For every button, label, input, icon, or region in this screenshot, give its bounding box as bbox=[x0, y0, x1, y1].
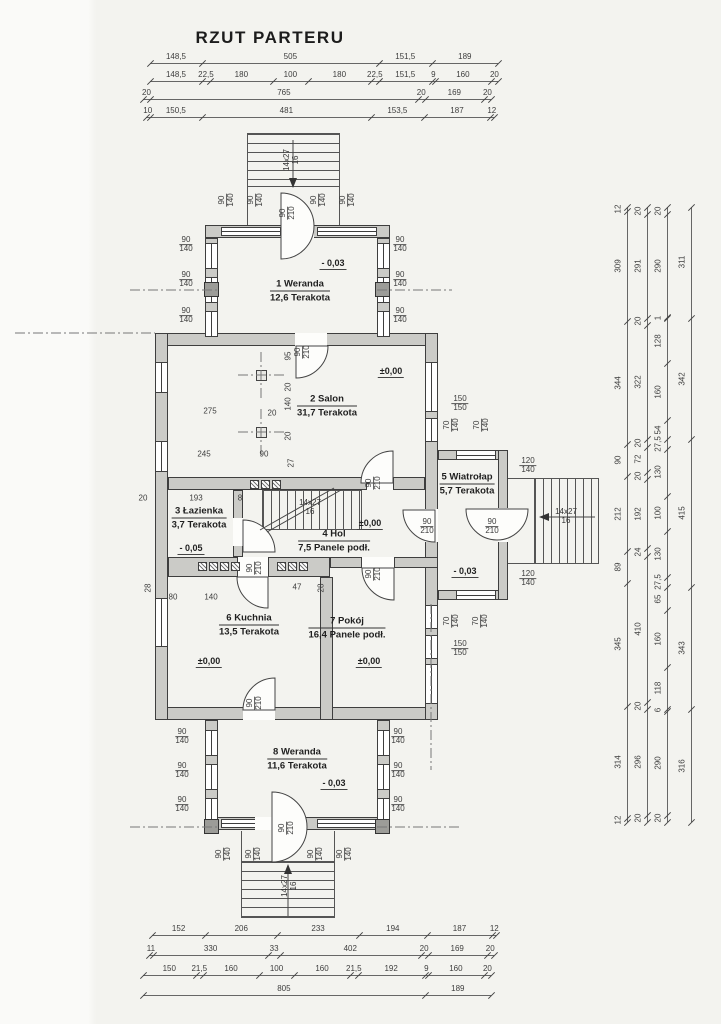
dim-label: 344 bbox=[614, 376, 623, 389]
dimension-chain: 2029120322207220192244102029620 bbox=[634, 207, 650, 822]
opening-size-label: 90140 bbox=[247, 193, 265, 206]
level-mark: - 0,03 bbox=[319, 258, 346, 270]
dim-label: 345 bbox=[614, 638, 623, 651]
dim-label: 65 bbox=[654, 594, 663, 603]
dim-label: 160 bbox=[449, 964, 462, 973]
dim-label: 8 bbox=[238, 494, 242, 503]
dim-label: 150 bbox=[163, 964, 176, 973]
dim-label: 20 bbox=[420, 944, 429, 953]
stairs-arrow-left bbox=[539, 513, 549, 521]
dim-label: 6 bbox=[654, 708, 663, 712]
opening-size-label: 90140 bbox=[307, 847, 325, 860]
dim-label: 189 bbox=[458, 52, 471, 61]
opening-size-label: 90140 bbox=[339, 193, 357, 206]
dim-label: 12 bbox=[487, 106, 496, 115]
dim-label: 245 bbox=[197, 450, 210, 459]
dim-label: 20 bbox=[142, 88, 151, 97]
opening-size-label: 90140 bbox=[179, 236, 192, 254]
dim-label: 27,5 bbox=[654, 575, 663, 591]
dim-label: 206 bbox=[235, 924, 248, 933]
dim-label: 28 bbox=[144, 584, 153, 593]
dim-label: 151,5 bbox=[395, 52, 415, 61]
dim-label: 180 bbox=[235, 70, 248, 79]
door-arc-kuchnia-hol bbox=[237, 577, 268, 608]
dim-label: 805 bbox=[277, 984, 290, 993]
dim-label: 20 bbox=[268, 409, 277, 418]
dim-label: 316 bbox=[678, 759, 687, 772]
dim-label: 140 bbox=[204, 593, 217, 602]
level-mark: ±0,00 bbox=[378, 366, 404, 378]
dimension-chain: 2029011281605427,513010013027,5651601186… bbox=[654, 207, 670, 822]
opening-size-label: 90210 bbox=[365, 567, 383, 580]
room-label: 3 Łazienka3,7 Terakota bbox=[172, 506, 227, 531]
dim-label: 160 bbox=[654, 632, 663, 645]
dim-label: 22,5 bbox=[367, 70, 383, 79]
dim-label: 481 bbox=[280, 106, 293, 115]
opening-size-label: 120140 bbox=[519, 457, 536, 475]
dim-label: 20 bbox=[483, 88, 492, 97]
dim-label: 9 bbox=[431, 70, 435, 79]
dim-label: 189 bbox=[451, 984, 464, 993]
dim-label: 47 bbox=[293, 583, 302, 592]
dim-label: 415 bbox=[678, 507, 687, 520]
dim-label: 765 bbox=[277, 88, 290, 97]
opening-size-label: 90210 bbox=[485, 518, 498, 536]
dim-label: 27 bbox=[287, 459, 296, 468]
dim-label: 11 bbox=[147, 944, 155, 953]
dim-label: 20 bbox=[654, 814, 663, 823]
dim-label: 160 bbox=[315, 964, 328, 973]
stairs-arrow-up bbox=[284, 864, 292, 874]
dim-label: 343 bbox=[678, 642, 687, 655]
opening-size-label: 90140 bbox=[391, 728, 404, 746]
dim-label: 33 bbox=[270, 944, 279, 953]
stairs-label: 14x2716 bbox=[282, 149, 300, 171]
dim-label: 151,5 bbox=[395, 70, 415, 79]
dim-label: 20 bbox=[284, 432, 293, 441]
dimension-chain: 148,522,518010018022,5151,5916020 bbox=[150, 70, 498, 84]
dim-label: 89 bbox=[614, 563, 623, 572]
dim-label: 402 bbox=[344, 944, 357, 953]
opening-size-label: 90140 bbox=[336, 847, 354, 860]
level-mark: - 0,03 bbox=[451, 566, 478, 578]
dim-label: 95 bbox=[284, 352, 293, 361]
opening-size-label: 70140 bbox=[443, 614, 461, 627]
opening-size-label: 90140 bbox=[179, 271, 192, 289]
opening-size-label: 90140 bbox=[175, 796, 188, 814]
dim-label: 22,5 bbox=[198, 70, 214, 79]
dim-label: 160 bbox=[456, 70, 469, 79]
dim-label: 290 bbox=[654, 756, 663, 769]
dim-label: 1 bbox=[654, 315, 663, 319]
dim-label: 153,5 bbox=[387, 106, 407, 115]
dimension-chain: 15021,516010016021,5192916020 bbox=[143, 964, 491, 978]
level-mark: - 0,05 bbox=[177, 543, 204, 555]
dim-label: 212 bbox=[614, 507, 623, 520]
dim-label: 20 bbox=[634, 439, 643, 448]
dim-label: 12 bbox=[490, 924, 499, 933]
dim-label: 505 bbox=[284, 52, 297, 61]
opening-size-label: 90210 bbox=[246, 561, 264, 574]
dim-label: 314 bbox=[614, 755, 623, 768]
dim-label: 20 bbox=[634, 206, 643, 215]
dim-label: 20 bbox=[634, 471, 643, 480]
opening-size-label: 90140 bbox=[215, 847, 233, 860]
dim-label: 187 bbox=[450, 106, 463, 115]
dim-label: 12 bbox=[614, 205, 623, 214]
dim-label: 20 bbox=[284, 383, 293, 392]
level-mark: ±0,00 bbox=[357, 518, 383, 530]
dimension-chain: 207652016920 bbox=[143, 88, 491, 102]
opening-size-label: 90210 bbox=[246, 696, 264, 709]
dim-label: 187 bbox=[453, 924, 466, 933]
dim-label: 24 bbox=[634, 548, 643, 557]
dim-label: 410 bbox=[634, 623, 643, 636]
dim-label: 342 bbox=[678, 372, 687, 385]
dimension-chain: 148,5505151,5189 bbox=[150, 52, 498, 66]
room-label: 5 Wiatrołap5,7 Terakota bbox=[440, 472, 495, 497]
dim-label: 10 bbox=[143, 106, 152, 115]
dim-label: 20 bbox=[490, 70, 499, 79]
dim-label: 9 bbox=[424, 964, 428, 973]
dim-label: 54 bbox=[654, 425, 663, 434]
level-mark: - 0,03 bbox=[320, 778, 347, 790]
opening-size-label: 90140 bbox=[310, 193, 328, 206]
opening-size-label: 90140 bbox=[393, 236, 406, 254]
opening-size-label: 90140 bbox=[175, 762, 188, 780]
stairs-label: 14x2716 bbox=[299, 498, 321, 516]
dim-label: 28 bbox=[317, 584, 326, 593]
opening-size-label: 90140 bbox=[245, 847, 263, 860]
opening-size-label: 90140 bbox=[179, 307, 192, 325]
dim-label: 90 bbox=[260, 450, 269, 459]
dim-label: 100 bbox=[654, 507, 663, 520]
room-label: 8 Weranda11,6 Terakota bbox=[267, 747, 327, 772]
room-label: 4 Hol7,5 Panele podł. bbox=[298, 529, 370, 554]
dim-label: 150,5 bbox=[166, 106, 186, 115]
dimension-chain: 10150,5481153,518712 bbox=[146, 106, 494, 120]
dim-label: 27,5 bbox=[654, 437, 663, 453]
dim-label: 148,5 bbox=[166, 70, 186, 79]
room-label: 2 Salon31,7 Terakota bbox=[297, 394, 357, 419]
dim-label: 169 bbox=[448, 88, 461, 97]
dim-label: 160 bbox=[224, 964, 237, 973]
dim-label: 180 bbox=[333, 70, 346, 79]
dim-label: 160 bbox=[654, 385, 663, 398]
opening-size-label: 150150 bbox=[451, 395, 468, 413]
dim-label: 20 bbox=[483, 964, 492, 973]
level-mark: ±0,00 bbox=[356, 656, 382, 668]
dim-label: 20 bbox=[654, 206, 663, 215]
dimension-chain: 15220623319418712 bbox=[152, 924, 496, 938]
dim-label: 275 bbox=[203, 407, 216, 416]
opening-size-label: 90140 bbox=[391, 796, 404, 814]
dim-label: 140 bbox=[284, 397, 293, 410]
dim-label: 169 bbox=[450, 944, 463, 953]
dim-label: 20 bbox=[139, 494, 148, 503]
opening-size-label: 90140 bbox=[393, 271, 406, 289]
opening-size-label: 120140 bbox=[519, 570, 536, 588]
room-label: 7 Pokój16,4 Panele podł. bbox=[308, 616, 385, 641]
opening-size-label: 90210 bbox=[294, 345, 312, 358]
opening-size-label: 150150 bbox=[451, 640, 468, 658]
dim-label: 309 bbox=[614, 260, 623, 273]
dim-label: 20 bbox=[486, 944, 495, 953]
dim-label: 80 bbox=[169, 593, 178, 602]
opening-size-label: 90210 bbox=[420, 518, 433, 536]
dim-label: 100 bbox=[270, 964, 283, 973]
dim-label: 20 bbox=[634, 317, 643, 326]
dim-label: 152 bbox=[172, 924, 185, 933]
stairs-label: 14x2716 bbox=[555, 507, 577, 525]
stairs-arrow-down bbox=[289, 178, 297, 188]
opening-size-label: 90140 bbox=[218, 193, 236, 206]
opening-size-label: 70140 bbox=[443, 418, 461, 431]
room-label: 6 Kuchnia13,5 Terakota bbox=[219, 613, 279, 638]
dim-label: 296 bbox=[634, 755, 643, 768]
dim-label: 148,5 bbox=[166, 52, 186, 61]
dim-label: 130 bbox=[654, 548, 663, 561]
dimension-chain: 311342415343316 bbox=[678, 207, 694, 822]
dim-label: 130 bbox=[654, 466, 663, 479]
dim-label: 330 bbox=[204, 944, 217, 953]
opening-size-label: 90140 bbox=[393, 307, 406, 325]
dim-label: 90 bbox=[614, 455, 623, 464]
dim-label: 291 bbox=[634, 259, 643, 272]
dim-label: 194 bbox=[386, 924, 399, 933]
opening-size-label: 90210 bbox=[279, 206, 297, 219]
dim-label: 12 bbox=[614, 815, 623, 824]
room-label: 1 Weranda12,6 Terakota bbox=[270, 279, 330, 304]
floor-plan-scan: RZUT PARTERU bbox=[0, 0, 721, 1024]
dim-label: 128 bbox=[654, 334, 663, 347]
door-arc-lazienka bbox=[243, 520, 275, 552]
dim-label: 193 bbox=[189, 494, 202, 503]
dim-label: 20 bbox=[634, 701, 643, 710]
dim-label: 20 bbox=[634, 814, 643, 823]
level-mark: ±0,00 bbox=[196, 656, 222, 668]
dim-label: 21,5 bbox=[346, 964, 362, 973]
dim-label: 290 bbox=[654, 259, 663, 272]
dim-label: 118 bbox=[654, 682, 663, 695]
dimension-chain: 12309344902128934531412 bbox=[614, 207, 630, 822]
dim-label: 20 bbox=[417, 88, 426, 97]
dim-label: 100 bbox=[284, 70, 297, 79]
opening-size-label: 90210 bbox=[365, 476, 383, 489]
opening-size-label: 90210 bbox=[278, 821, 296, 834]
dim-label: 233 bbox=[311, 924, 324, 933]
stairs-label: 14x2716 bbox=[280, 875, 298, 897]
dim-label: 322 bbox=[634, 375, 643, 388]
dim-label: 72 bbox=[634, 455, 643, 464]
opening-size-label: 90140 bbox=[391, 762, 404, 780]
dimension-chain: 805189 bbox=[143, 984, 491, 998]
dim-label: 192 bbox=[634, 507, 643, 520]
opening-size-label: 70140 bbox=[473, 418, 491, 431]
dim-label: 311 bbox=[678, 256, 687, 269]
dimension-chain: 11330334022016920 bbox=[149, 944, 494, 958]
dim-label: 192 bbox=[384, 964, 397, 973]
stairs-break-line bbox=[260, 488, 334, 530]
opening-size-label: 70140 bbox=[472, 614, 490, 627]
opening-size-label: 90140 bbox=[175, 728, 188, 746]
